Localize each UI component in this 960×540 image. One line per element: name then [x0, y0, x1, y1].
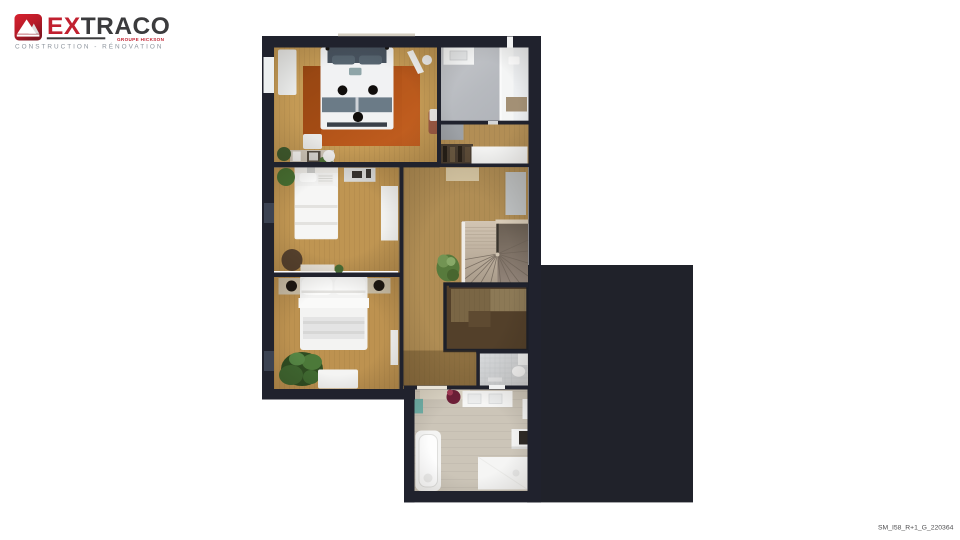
svg-text:SM_I58_R+1_G_220364: SM_I58_R+1_G_220364	[878, 525, 954, 532]
svg-text:GROUPE HICKSON: GROUPE HICKSON	[117, 37, 165, 42]
svg-text:CONSTRUCTION - RÉNOVATION: CONSTRUCTION - RÉNOVATION	[15, 42, 163, 51]
svg-text:EXTRACO: EXTRACO	[47, 13, 170, 40]
